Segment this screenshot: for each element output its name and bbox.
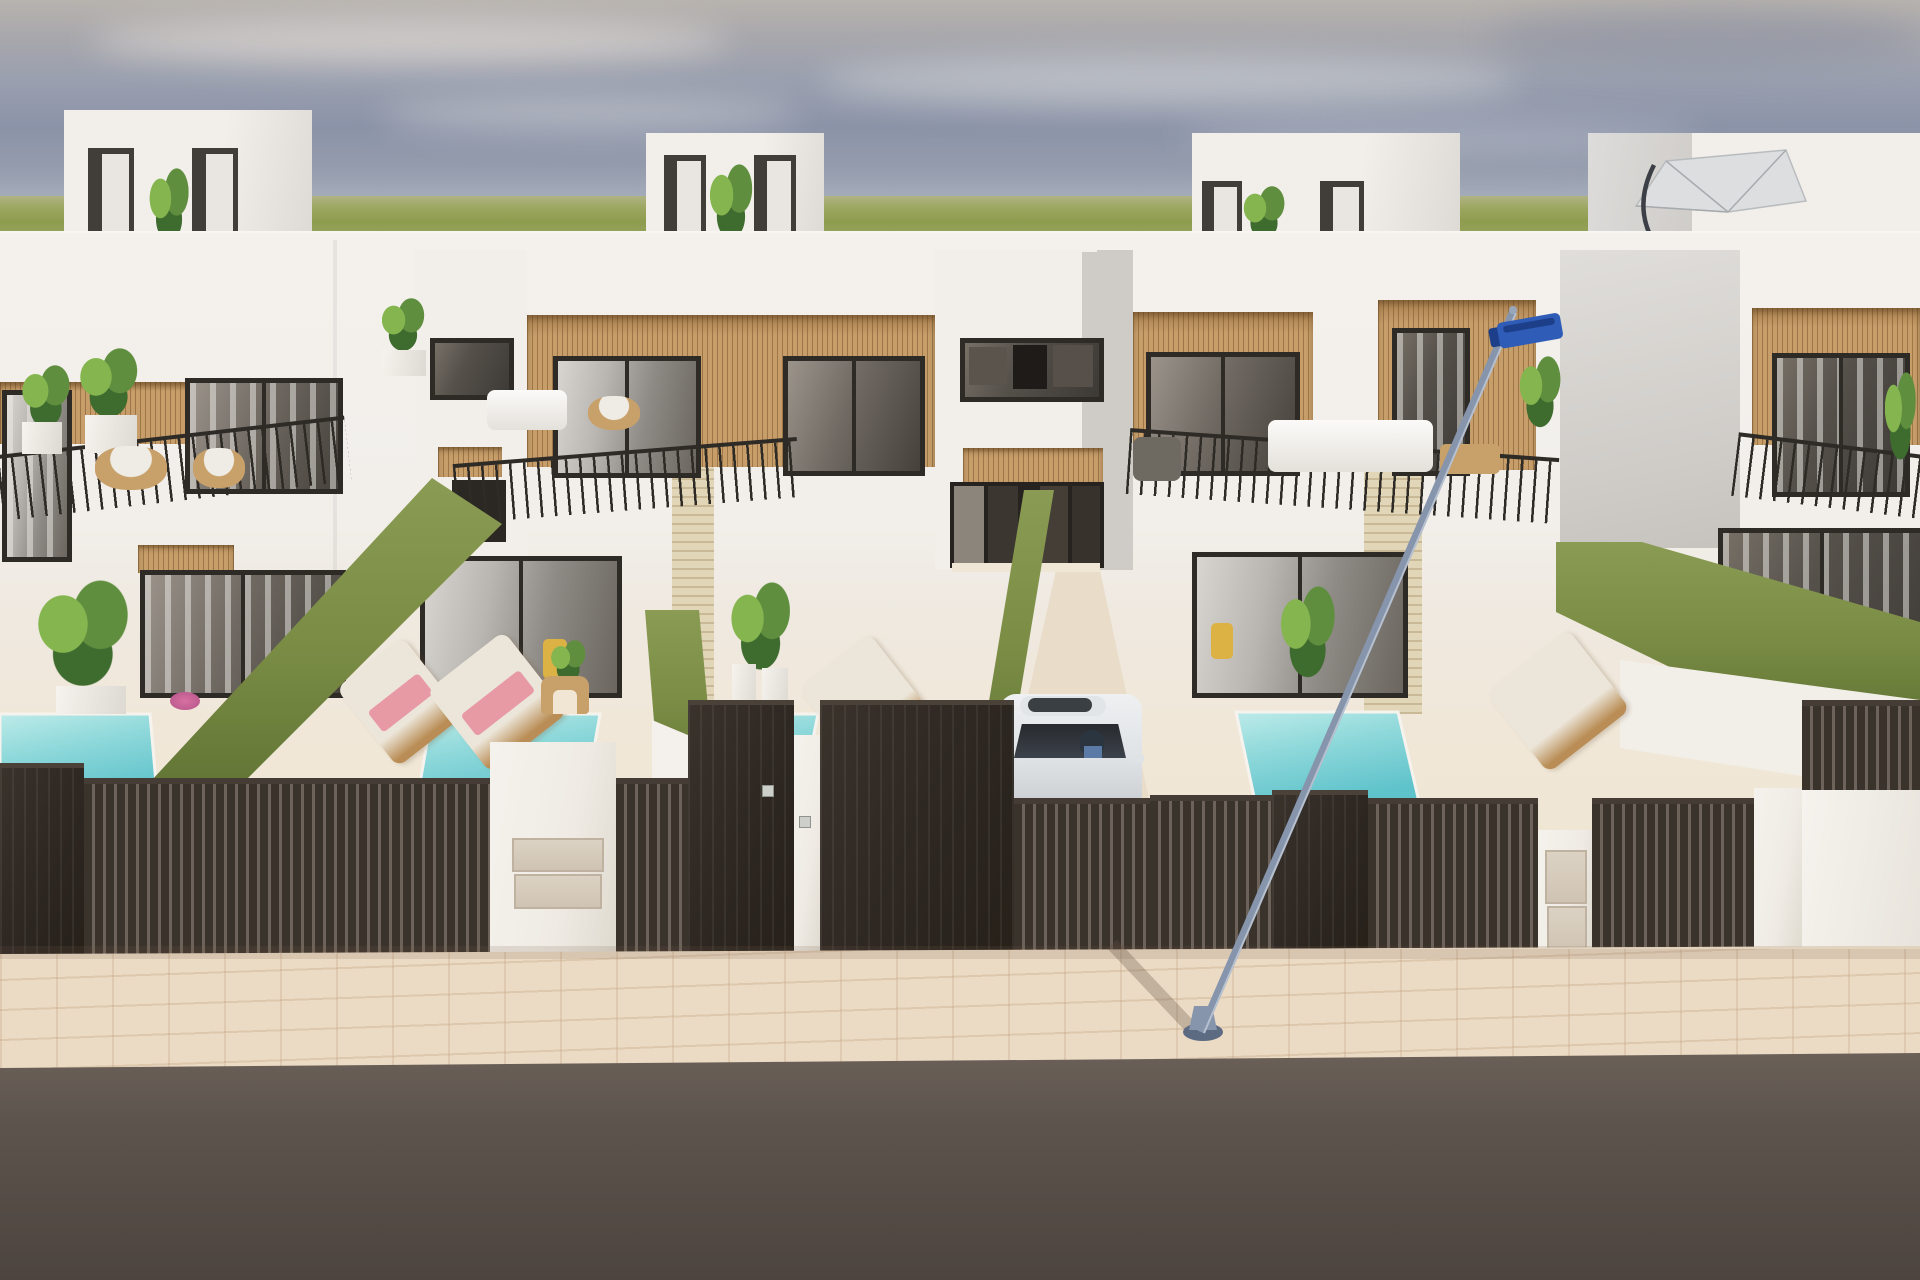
lamp-pole-highlight [1204,313,1516,1033]
lamp-head [1487,312,1563,350]
lamp-pole [1201,312,1513,1032]
street-lamp-layer [0,0,1920,1280]
lamp-pole-cap [1509,306,1517,314]
architectural-render [0,0,1920,1280]
lamp-shadow [1112,944,1199,1036]
